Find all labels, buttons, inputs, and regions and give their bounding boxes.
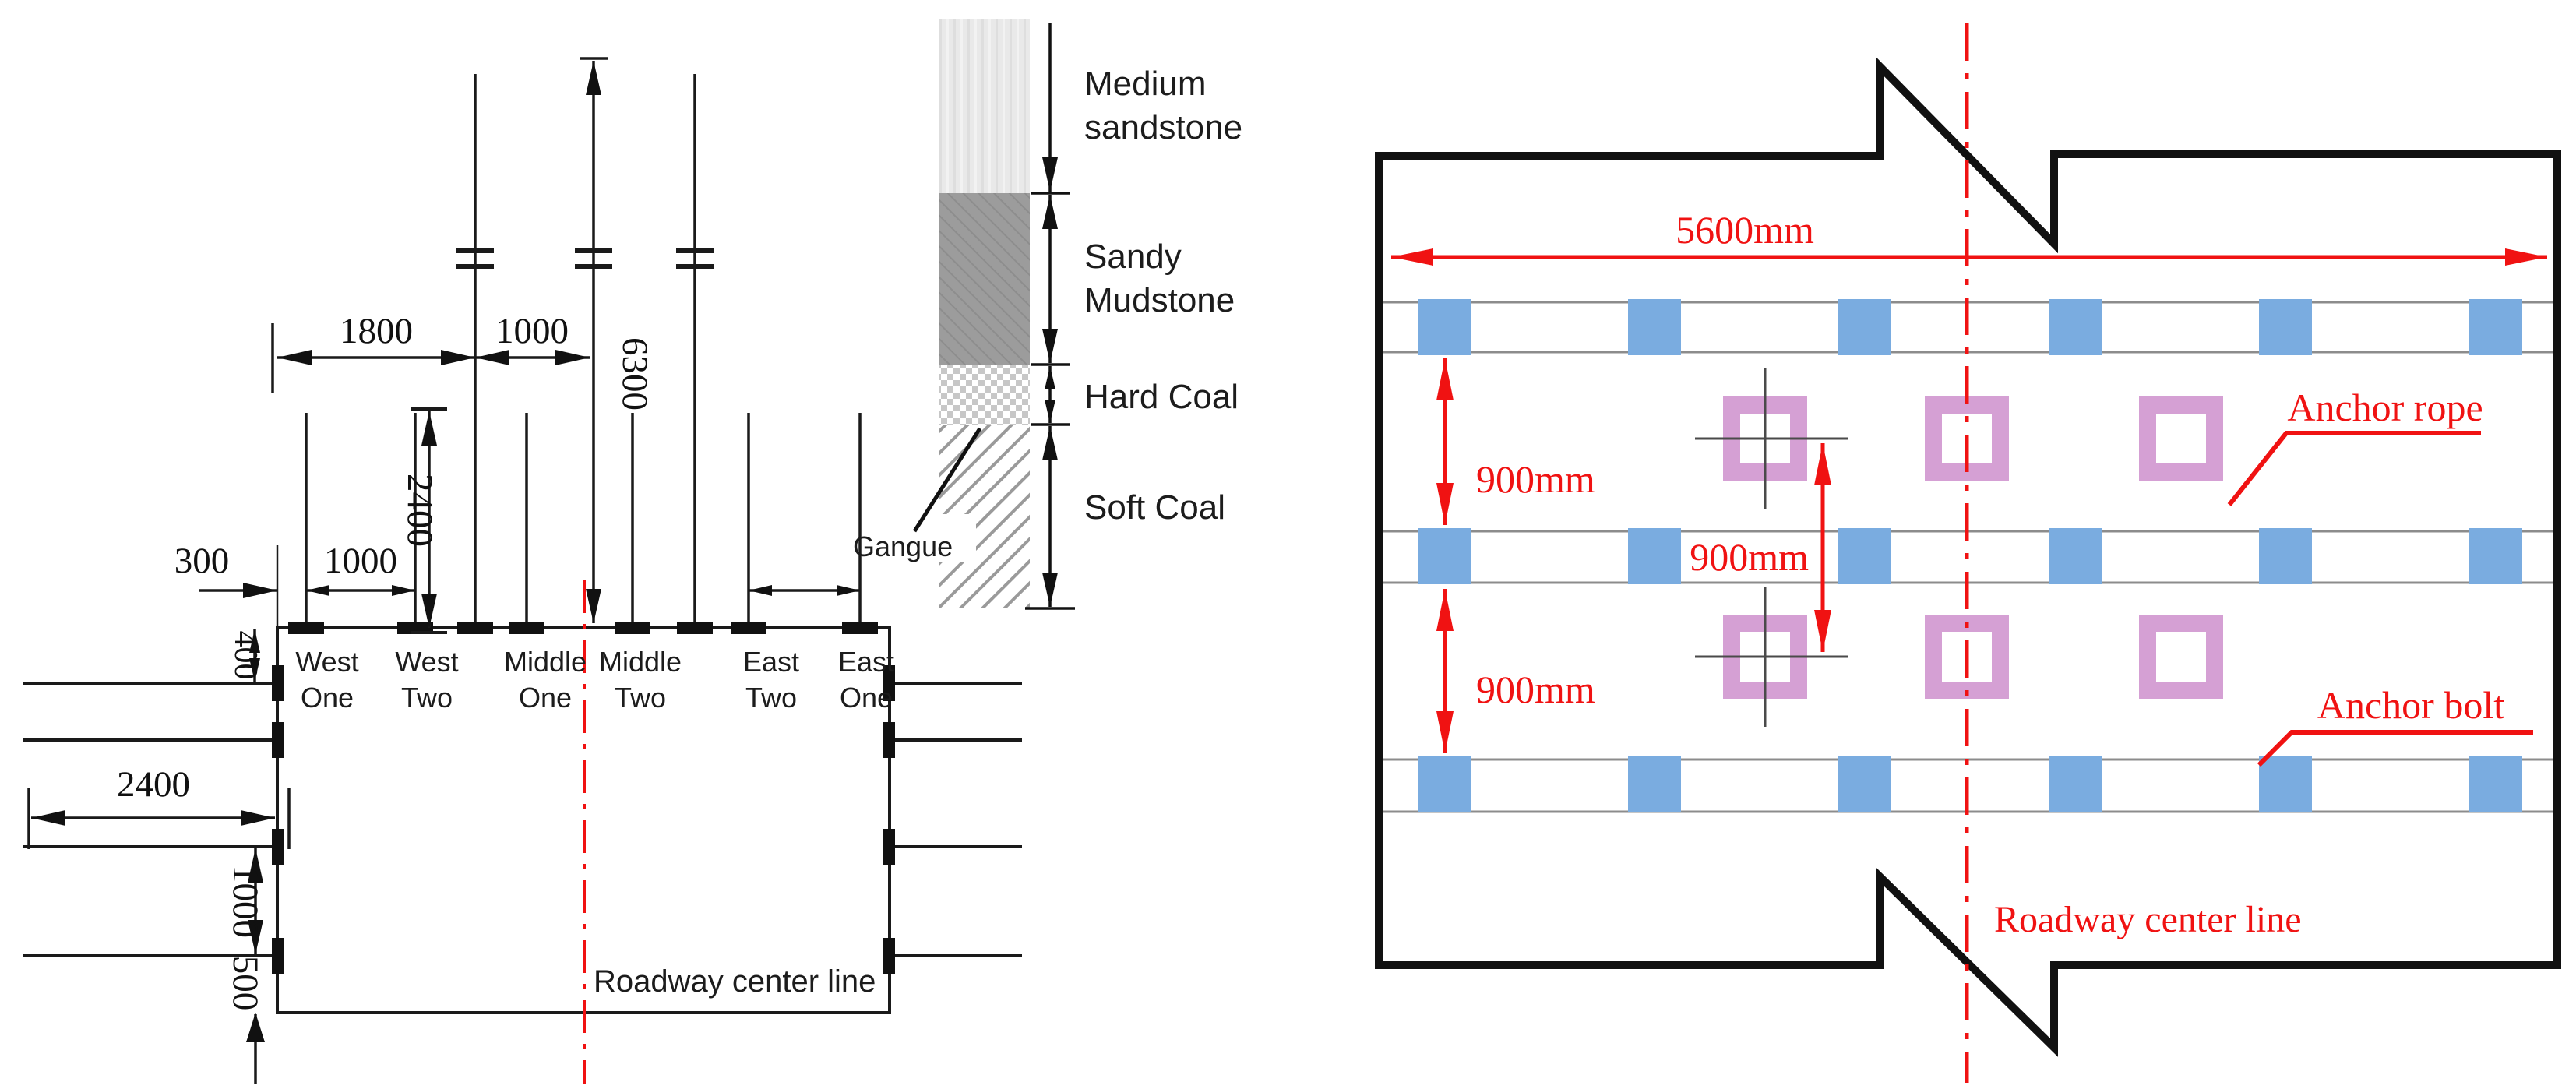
label-east-one-l1: East: [838, 646, 894, 678]
label-middle-two-l2: Two: [615, 682, 666, 714]
label-sandy-mudstone-l1: Sandy: [1084, 238, 1182, 276]
label-hard-coal: Hard Coal: [1084, 378, 1239, 416]
dim-1000-side-value: 1000: [225, 865, 266, 938]
left-centerline-label: Roadway center line: [594, 964, 876, 999]
dim-6300-value: 6300: [615, 337, 655, 411]
label-medium-sandstone-l1: Medium: [1084, 65, 1207, 103]
label-medium-sandstone-l2: sandstone: [1084, 108, 1242, 146]
label-middle-one-l1: Middle: [504, 646, 587, 678]
dim-1000-row-value: 1000: [324, 541, 397, 581]
layer-sandy-mudstone: [939, 193, 1030, 365]
label-soft-coal: Soft Coal: [1084, 488, 1225, 527]
dim-400-value: 400: [227, 631, 263, 680]
label-west-one-l2: One: [301, 682, 354, 714]
dim-300-value: 300: [174, 541, 230, 581]
dim-900-rope-value: 900mm: [1690, 535, 1809, 579]
right-centerline-label: Roadway center line: [1994, 899, 2302, 940]
label-west-one-l1: West: [295, 646, 358, 678]
label-west-two-l1: West: [395, 646, 458, 678]
label-middle-one-l2: One: [519, 682, 572, 714]
dim-500-value: 500: [225, 956, 266, 1011]
label-sandy-mudstone-l2: Mudstone: [1084, 281, 1235, 319]
gangue-label: Gangue: [853, 530, 953, 562]
label-middle-two-l1: Middle: [599, 646, 682, 678]
label-east-one-l2: One: [840, 682, 893, 714]
dim-400: 400: [227, 629, 263, 682]
label-east-two-l2: Two: [745, 682, 797, 714]
layer-medium-sandstone: [939, 19, 1030, 193]
anchor-bolt-label: Anchor bolt: [2317, 683, 2504, 727]
dim-2400-vertical-value: 2400: [400, 474, 440, 547]
mine-roadway-support-diagram: 1800 1000 6300 2400 300 1000: [0, 0, 2576, 1089]
dim-1000-top-value: 1000: [495, 311, 569, 351]
dim-5600-value: 5600mm: [1676, 208, 1814, 252]
dim-900-row2-value: 900mm: [1476, 668, 1595, 711]
label-west-two-l2: Two: [401, 682, 453, 714]
dim-900-row1-value: 900mm: [1476, 457, 1595, 501]
anchor-rope-label: Anchor rope: [2287, 386, 2483, 429]
dim-2400-side-value: 2400: [117, 764, 190, 805]
dim-1800-value: 1800: [340, 311, 413, 351]
label-east-two-l1: East: [743, 646, 799, 678]
layer-hard-coal: [939, 365, 1030, 425]
